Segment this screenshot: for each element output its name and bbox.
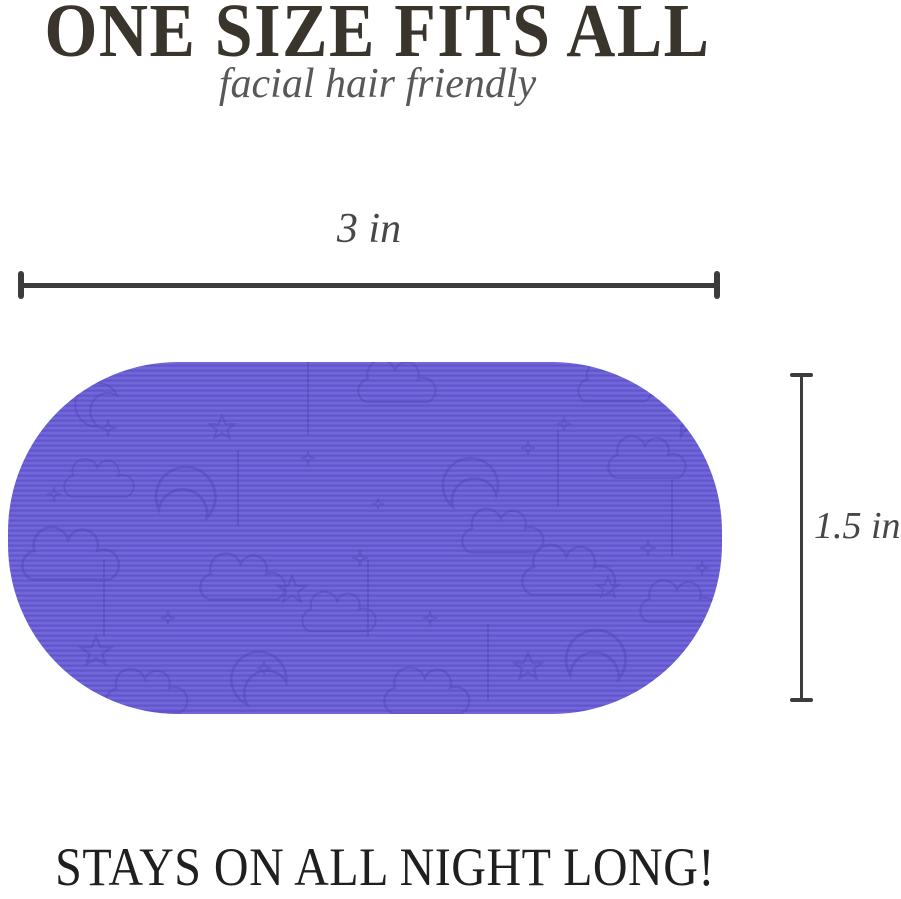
width-dimension-label: 3 in <box>0 205 738 253</box>
width-dimension-cap-left <box>18 271 24 299</box>
height-dimension-cap-bottom <box>790 698 813 702</box>
width-dimension-line <box>20 283 718 288</box>
sleep-strip-patch <box>8 362 722 714</box>
height-dimension-line <box>800 375 803 700</box>
width-dimension-cap-right <box>714 271 720 299</box>
patch-fabric-texture <box>8 362 722 714</box>
height-dimension-label: 1.5 in <box>814 504 901 548</box>
subtitle: facial hair friendly <box>0 60 755 108</box>
height-dimension-cap-top <box>790 373 813 377</box>
footer-tagline: STAYS ON ALL NIGHT LONG! <box>0 837 770 899</box>
